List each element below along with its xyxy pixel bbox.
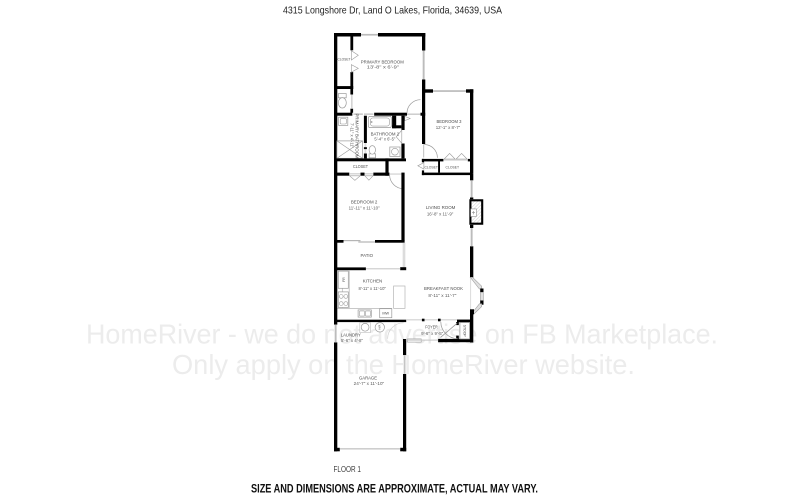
svg-text:8'-11" x 11'-7": 8'-11" x 11'-7" [428,293,457,298]
svg-text:GARAGE: GARAGE [359,376,377,381]
svg-text:5'-4" x 6'-5": 5'-4" x 6'-5" [374,136,395,141]
svg-text:WH: WH [378,325,382,330]
svg-text:FOYER: FOYER [425,325,438,330]
svg-text:BEDROOM 3: BEDROOM 3 [437,119,462,124]
svg-text:CLOSET: CLOSET [446,165,460,170]
svg-text:4315 Longshore Dr, Land O Lake: 4315 Longshore Dr, Land O Lakes, Florida… [283,4,502,16]
svg-text:7'-11" x 4'-11": 7'-11" x 4'-11" [349,123,354,149]
svg-text:BEDROOM 2: BEDROOM 2 [351,200,378,205]
svg-text:PATIO: PATIO [361,253,374,258]
svg-text:9'-6" x 9'-5": 9'-6" x 9'-5" [421,331,444,336]
svg-text:FLOOR 1: FLOOR 1 [334,464,362,474]
svg-text:13'-8" x 6'-9": 13'-8" x 6'-9" [367,65,400,70]
svg-text:24'-7" x 11'-10": 24'-7" x 11'-10" [354,381,385,386]
svg-text:12'-1" x 8'-7": 12'-1" x 8'-7" [436,125,461,130]
svg-text:8'-11" x 11'-10": 8'-11" x 11'-10" [358,286,386,291]
svg-text:BREAKFAST NOOK: BREAKFAST NOOK [424,286,464,291]
svg-text:5'-6" x 4'-8": 5'-6" x 4'-8" [341,338,364,343]
svg-text:11'-11" x 11'-10": 11'-11" x 11'-10" [349,205,381,210]
svg-text:LAUNDRY: LAUNDRY [341,332,361,337]
svg-text:LIVING ROOM: LIVING ROOM [426,205,456,210]
svg-text:STOOP: STOOP [463,325,467,338]
svg-text:MW: MW [382,312,389,316]
svg-text:PRIMARY BATHROOM: PRIMARY BATHROOM [355,114,360,159]
svg-text:FR: FR [342,277,346,282]
svg-text:CLOSET: CLOSET [353,164,368,169]
svg-text:16'-8" x 11'-9": 16'-8" x 11'-9" [427,212,454,217]
svg-text:KITCHEN: KITCHEN [363,279,383,284]
svg-text:CLOSET: CLOSET [338,56,351,61]
svg-text:CLOSET: CLOSET [424,165,438,170]
svg-text:SIZE AND DIMENSIONS ARE APPROX: SIZE AND DIMENSIONS ARE APPROXIMATE, ACT… [251,482,538,495]
